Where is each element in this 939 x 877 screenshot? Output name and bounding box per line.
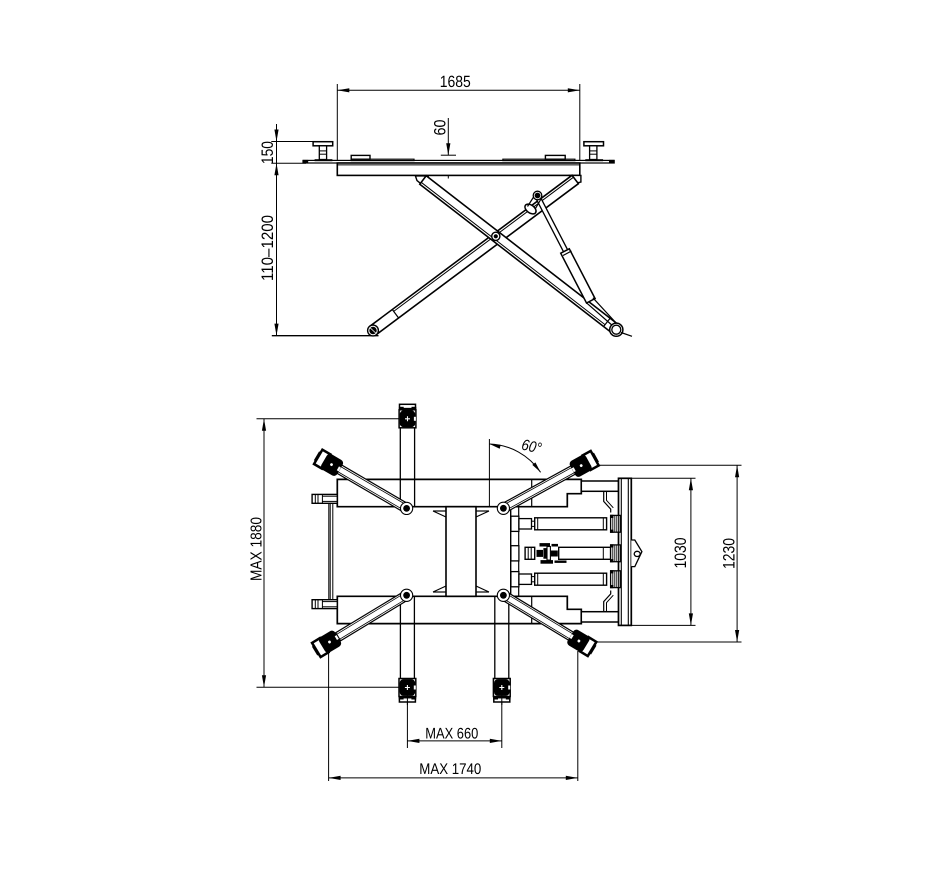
svg-text:MAX 1880: MAX 1880	[249, 517, 266, 581]
svg-text:MAX 1740: MAX 1740	[419, 761, 481, 778]
svg-text:110–1200: 110–1200	[259, 215, 277, 281]
svg-text:1230: 1230	[721, 538, 739, 569]
svg-text:60: 60	[432, 120, 450, 136]
svg-text:1685: 1685	[440, 73, 471, 91]
svg-text:MAX 660: MAX 660	[425, 725, 478, 742]
svg-text:150: 150	[259, 141, 277, 164]
svg-text:1030: 1030	[672, 538, 690, 569]
